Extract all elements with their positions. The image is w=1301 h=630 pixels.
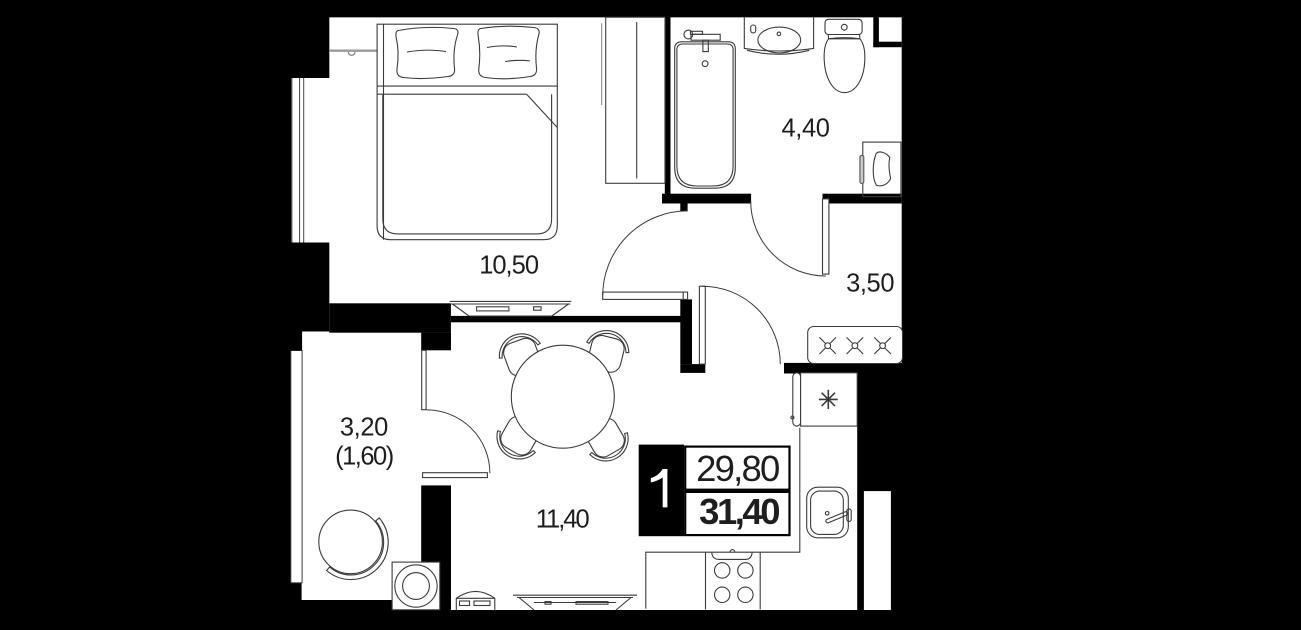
svg-text:10,50: 10,50 <box>479 252 539 280</box>
svg-text:3,20: 3,20 <box>340 413 388 441</box>
svg-text:31,40: 31,40 <box>699 491 779 532</box>
svg-text:11,40: 11,40 <box>536 506 590 534</box>
svg-text:4,40: 4,40 <box>781 115 829 143</box>
svg-text:3,50: 3,50 <box>846 269 894 297</box>
svg-text:(1,60): (1,60) <box>335 442 393 470</box>
svg-text:29,80: 29,80 <box>696 448 779 489</box>
